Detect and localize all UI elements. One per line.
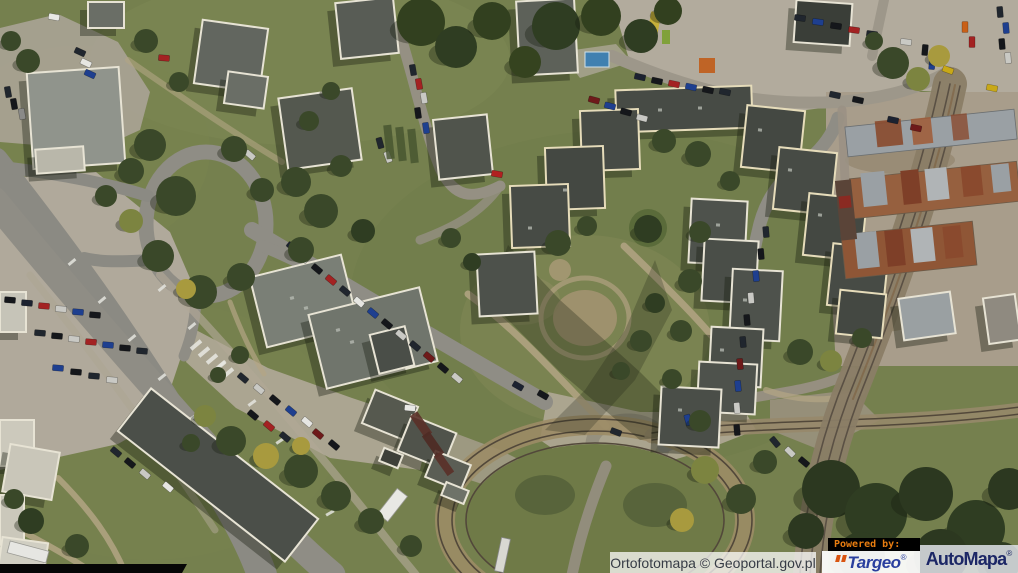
automapa-logo[interactable]: AutoMapa ® <box>920 545 1018 573</box>
attribution-strip: Ortofotomapa © Geoportal.gov.pl <box>610 552 816 573</box>
buildings-bldg <box>27 146 85 181</box>
buildings-rect <box>910 227 935 263</box>
buildings-rect <box>960 165 983 197</box>
automapa-registered-mark: ® <box>1006 550 1012 558</box>
buildings-rect <box>884 229 906 267</box>
aerial-imagery[interactable] <box>0 0 1018 573</box>
map-viewport: Ortofotomapa © Geoportal.gov.pl Powered … <box>0 0 1018 573</box>
targeo-registered-mark: ® <box>901 554 907 562</box>
buildings-rect <box>662 30 670 44</box>
buildings-rect <box>924 167 949 201</box>
imagery-artifact-layer <box>0 564 187 573</box>
buildings-rect <box>699 58 715 73</box>
buildings-rect <box>585 52 609 67</box>
tram-and-rail-tracks-ell <box>515 475 575 515</box>
buildings-rect <box>854 231 880 269</box>
buildings-rect <box>991 163 1012 193</box>
buildings-bldg <box>425 114 493 187</box>
powered-by-bar: Powered by: <box>828 538 920 551</box>
buildings-bldg <box>890 292 955 349</box>
attribution-text: Ortofotomapa © Geoportal.gov.pl <box>610 555 815 571</box>
buildings-rect <box>838 195 851 208</box>
buildings-rect <box>860 171 887 207</box>
powered-by-label: Powered by: <box>834 540 900 550</box>
buildings-bldg <box>327 0 399 67</box>
buildings-rect <box>911 117 934 145</box>
ground-ell <box>549 259 571 281</box>
automapa-logo-text: AutoMapa <box>926 550 1007 568</box>
targeo-logo-text: Targeo <box>848 554 901 571</box>
buildings-rect <box>942 225 963 259</box>
buildings-bldg <box>786 0 853 54</box>
imagery-artifact-poly <box>0 564 187 573</box>
targeo-quote-icon <box>836 555 846 562</box>
targeo-logo[interactable]: Targeo ® <box>822 551 920 573</box>
buildings-rect <box>900 169 921 205</box>
buildings-rect <box>951 113 970 141</box>
buildings-rect <box>875 119 904 148</box>
